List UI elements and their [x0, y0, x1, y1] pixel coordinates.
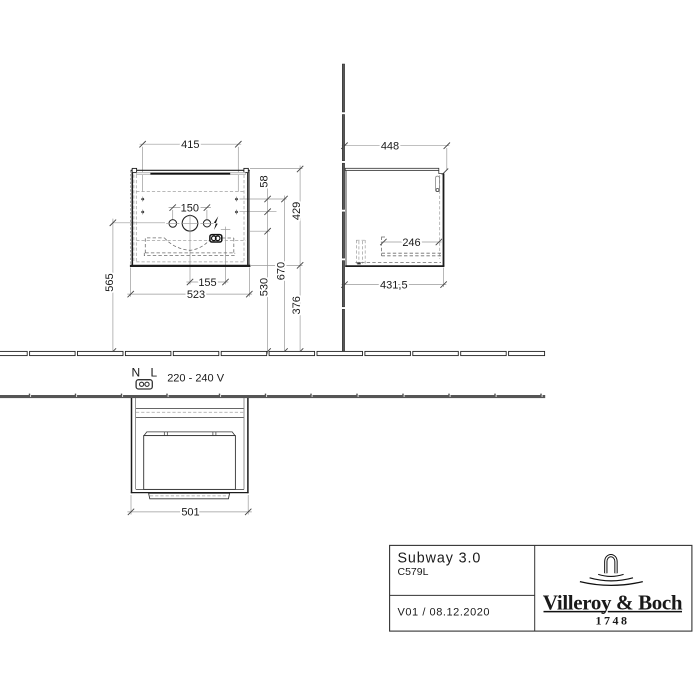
svg-text:246: 246 [402, 237, 420, 249]
svg-text:N: N [131, 365, 140, 379]
svg-text:429: 429 [291, 202, 303, 220]
svg-text:Villeroy & Boch: Villeroy & Boch [543, 590, 683, 614]
svg-text:1748: 1748 [596, 614, 630, 628]
svg-text:L: L [150, 365, 157, 379]
svg-text:155: 155 [198, 277, 216, 289]
svg-text:220 - 240 V: 220 - 240 V [167, 372, 225, 384]
svg-text:Subway 3.0: Subway 3.0 [398, 551, 482, 567]
svg-text:150: 150 [181, 203, 199, 215]
svg-text:431,5: 431,5 [380, 279, 408, 291]
svg-text:C579L: C579L [398, 566, 429, 578]
svg-text:501: 501 [181, 507, 199, 519]
svg-text:530: 530 [259, 278, 271, 296]
svg-text:523: 523 [187, 289, 205, 301]
svg-text:565: 565 [104, 273, 116, 291]
svg-text:415: 415 [181, 139, 199, 151]
svg-text:58: 58 [259, 175, 271, 187]
svg-text:376: 376 [291, 296, 303, 314]
svg-text:V01 / 08.12.2020: V01 / 08.12.2020 [398, 607, 491, 619]
svg-text:670: 670 [276, 262, 288, 280]
svg-text:448: 448 [381, 141, 399, 153]
